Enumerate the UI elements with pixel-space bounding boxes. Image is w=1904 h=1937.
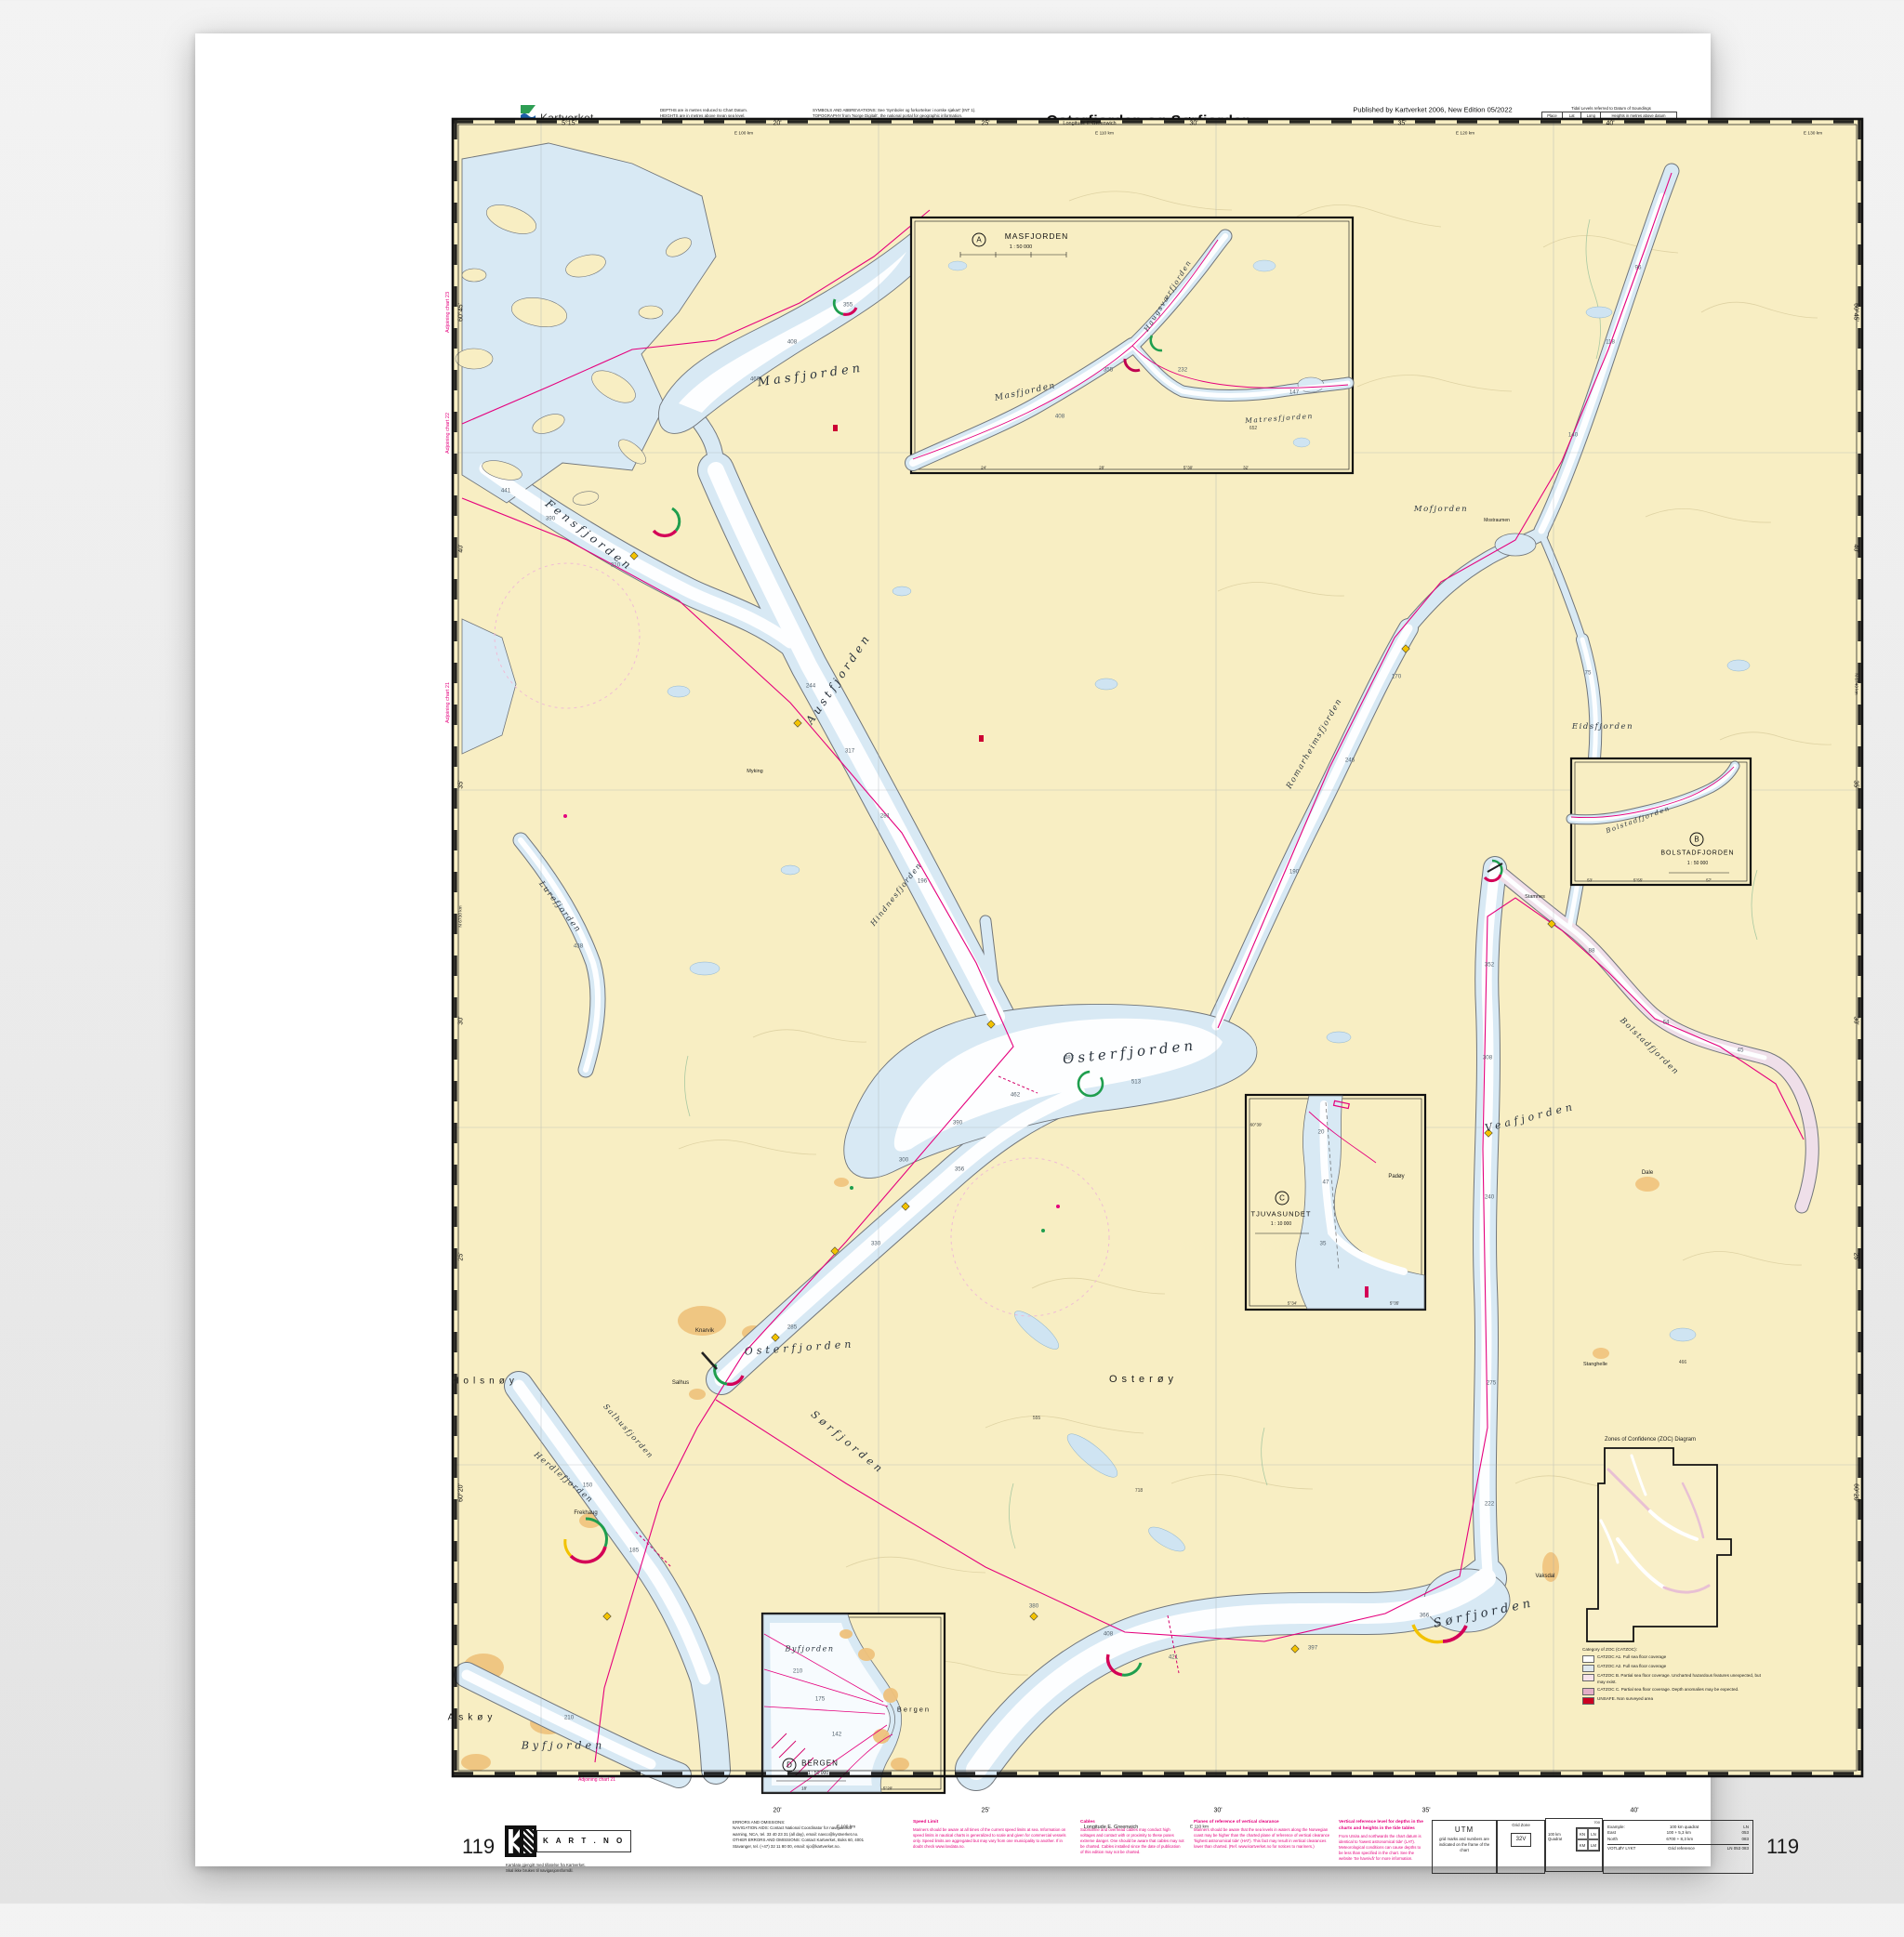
map-label: Longitude E Greenwich [1063,121,1116,126]
sounding: 408 [1104,1631,1113,1638]
map-label: MASFJORDEN [1005,231,1069,241]
zoc-legend-entry: CATZOC A2. Full sea floor coverage [1582,1664,1822,1672]
zoc-legend-title: Category of ZOC (CATZOC): [1582,1647,1822,1654]
map-label: BERGEN [801,1759,839,1768]
map-label: 40' [458,544,465,552]
sounding: 390 [546,516,555,522]
grid-zone-value: 32V [1511,1833,1531,1847]
map-label: 5°30' [1183,466,1193,470]
map-label: 5°20' [883,1786,892,1791]
map-label: 5°35' [1390,1301,1399,1306]
chart-sheet: Kartverket DEPTHS are in metres reduced … [195,33,1711,1866]
sounding: 170 [1392,674,1401,680]
sounding: 285 [787,1324,797,1331]
map-label: 20' [773,1808,781,1814]
map-label: Eidsfjorden [1572,722,1633,731]
quadrat-top: 700 [1548,1820,1600,1825]
map-label: Mofjorden [1414,505,1468,514]
map-label: 53' [1587,878,1593,883]
grid-example-box: Example:100 km quadratLN East100 + 5,3 k… [1603,1820,1753,1874]
quadrat-label: 100 km Quadrat [1548,1832,1572,1841]
map-label: Askøy [448,1713,497,1723]
map-label: 32' [1243,466,1249,470]
map-label: Byfjorden [786,1645,835,1654]
map-label: Matresfjorden [1245,412,1314,425]
map-label: 35' [1397,121,1406,127]
map-label: Frekhaug [574,1510,597,1516]
map-label: 5°55' [1633,878,1643,883]
sounding: 150 [583,1482,592,1489]
map-label: Bolstadfjorden [1618,1016,1681,1077]
map-label: 28' [1099,466,1104,470]
sounding: 185 [629,1548,639,1554]
sounding: 460 [750,376,760,383]
map-label: 30' [1853,1016,1859,1024]
map-label: N 6740 km [1854,673,1858,694]
map-label: E 100 km [734,132,753,137]
sounding: 210 [793,1668,802,1675]
kartno-logo: K A R T . N O [505,1825,631,1857]
map-label: B [1690,833,1704,847]
map-label: 1 : 50 000 [1010,244,1032,250]
map-label: TJUVASUNDET [1250,1210,1311,1219]
grid-zone-label: Grid Zone [1500,1823,1542,1827]
map-label: Adjoining chart 22 [445,413,451,454]
map-label: 35' [458,780,465,788]
sounding: 190 [1289,869,1299,876]
sounding: 275 [1487,1380,1496,1387]
map-label: 1 : 50 000 [1687,861,1708,866]
utm-box: UTM grid marks and numbers are indicated… [1432,1820,1497,1874]
sounding: 308 [1483,1055,1492,1061]
map-label: Herdlefjorden [532,1450,595,1505]
map-label: Osterfjorden [744,1337,854,1357]
sounding: 356 [955,1166,964,1173]
kartno-logo-text: K A R T . N O [536,1830,631,1852]
map-label: Adjoining chart 21 [445,682,451,723]
map-label: Hindnesfjorden [869,861,924,928]
map-label: Bergen [897,1706,931,1714]
map-label: A [972,233,986,247]
map-label: Austfjorden [803,630,874,726]
footer-note: Planes of reference of vertical clearanc… [1194,1820,1331,1850]
map-label: 466 [1679,1360,1686,1365]
map-label: D [783,1759,797,1772]
photo-background: Kartverket DEPTHS are in metres reduced … [0,0,1904,1904]
errors-block: ERRORS AND OMISSIONS:NAVIGATION AIDS: Co… [733,1820,892,1850]
map-label: 25' [981,1808,989,1814]
map-label: Masfjorden [994,381,1057,403]
sounding: 140 [1568,432,1578,439]
sounding: 380 [1029,1603,1038,1610]
map-label: 1 : 50 000 [808,1771,828,1776]
map-label: 60°20' [1853,1483,1859,1502]
sounding: 390 [953,1120,962,1127]
sounding: 147 [1289,389,1299,396]
chart-number-right: 119 [1766,1835,1799,1859]
sounding: 408 [1055,414,1064,420]
map-label: 718 [1135,1488,1143,1494]
sounding: 421 [1169,1654,1178,1661]
sounding: 64 [1663,1020,1670,1026]
map-label: 57' [1706,878,1712,883]
map-label: 18' [801,1786,807,1791]
map-label: Adjoining chart 23 [445,292,451,333]
sounding: 513 [1131,1079,1141,1086]
map-label: Osterøy [1109,1374,1178,1385]
map-label: 25' [981,121,989,127]
sounding: 196 [918,878,927,885]
map-label: 30' [458,1016,465,1024]
sounding: 397 [1308,1645,1317,1652]
map-label: 60°20' [458,1483,465,1502]
map-label: Dale [1642,1170,1653,1176]
map-label: 60°39' [1250,1123,1263,1127]
sounding: 47 [1323,1179,1329,1186]
map-label: 5°15' [562,121,576,127]
map-label: 40' [1853,544,1859,552]
map-label: 35' [1421,1808,1430,1814]
map-label: 652 [1249,426,1257,431]
map-label: E 130 km [1804,132,1822,137]
map-label: N 6730 km [459,905,464,927]
chart-number-left: 119 [462,1835,495,1859]
sounding: 441 [501,488,510,494]
map-label: 60°45' [1853,303,1859,322]
sounding: 355 [1104,367,1113,374]
sounding: 20 [1318,1129,1325,1136]
sounding: 330 [871,1241,880,1247]
sounding: 300 [899,1157,908,1164]
map-label: 24' [981,466,986,470]
sounding: 232 [1178,367,1187,374]
kartno-disclaimer: Kartdata gjengitt med tillatelse fra Kar… [506,1863,586,1874]
sounding: 35 [1320,1241,1327,1247]
sounding: 487 [1064,1055,1074,1061]
sounding: 45 [1738,1048,1744,1054]
map-label: Lurefjorden [536,879,583,934]
kartno-logo-icon [505,1825,536,1857]
map-label: Osterfjorden [1062,1036,1197,1067]
map-label: Bolstadfjorden [1605,805,1671,836]
sounding: 246 [1345,758,1355,764]
utm-title: UTM [1435,1825,1494,1835]
map-label: Veafjorden [1484,1100,1577,1135]
map-label: BOLSTADFJORDEN [1660,850,1734,857]
map-label: 20' [773,121,781,127]
sounding: 462 [1011,1092,1020,1099]
sounding: 75 [1585,670,1592,677]
footer-note: Speed LimitMariners should be aware at a… [913,1820,1069,1850]
zoc-legend: Category of ZOC (CATZOC): CATZOC A1. Ful… [1582,1647,1822,1706]
map-label: Sørfjorden [809,1408,888,1477]
sounding: 88 [1589,948,1595,955]
sounding: 222 [1485,1501,1494,1508]
map-label: 5°34' [1288,1301,1297,1306]
map-label: Masfjorden [757,362,865,390]
map-label: Haugsværfjorden [1143,258,1194,333]
map-label: C [1276,1192,1289,1206]
sounding: 244 [806,683,815,690]
quadrat-grid: KNLNKMLM [1576,1827,1600,1851]
map-label: Fensfjorden [543,497,636,574]
map-label: 35' [1853,780,1859,788]
sounding: 366 [1420,1613,1429,1619]
map-label: Salhusfjorden [602,1403,654,1460]
sounding: 281 [880,813,890,820]
zoc-legend-entry: CATZOC C. Partial sea floor coverage. De… [1582,1687,1822,1695]
map-label: Vaksdal [1536,1574,1555,1579]
footer-note: CablesSubmarine and overhead cables may … [1080,1820,1184,1855]
zoc-legend-entry: UNSAFE. Non surveyed area [1582,1696,1822,1705]
zoc-legend-entry: CATZOC B. Partial sea floor coverage. Un… [1582,1673,1822,1686]
quadrat-box: 700 KNLNKMLM 100 km Quadrat [1545,1818,1603,1872]
map-label: Zones of Confidence (ZOC) Diagram [1605,1437,1696,1443]
map-label: Adjoining chart 21 [578,1777,615,1783]
utm-text: grid marks and numbers are indicated on … [1435,1837,1494,1853]
map-label: Knarvik [695,1328,714,1334]
map-label: 40' [1606,121,1614,127]
map-label: 40' [1630,1808,1638,1814]
map-label: Stanghelle [1583,1362,1607,1367]
map-label: 30' [1189,121,1197,127]
sounding: 175 [815,1696,825,1703]
map-label: 60°45' [458,303,465,322]
map-label: Myking [747,769,762,774]
sounding: 310 [611,562,620,569]
map-label: Padøy [1388,1174,1404,1179]
sounding: 142 [832,1732,841,1738]
footer-note: Vertical reference level for depths in t… [1339,1820,1424,1862]
sounding: 210 [564,1715,574,1721]
map-label: Stamnes [1525,894,1545,900]
map-label: Romarheimsfjorden [1285,697,1344,791]
zoc-legend-entry: CATZOC A1. Full sea floor coverage [1582,1654,1822,1663]
map-label: Sørfjorden [1433,1596,1536,1631]
map-label: Salhus [672,1380,689,1386]
sounding: 352 [1485,962,1494,968]
sounding: 118 [1606,339,1615,346]
map-label: Holsnøy [452,1377,519,1387]
sounding: 408 [787,339,797,346]
sounding: 96 [1635,265,1642,271]
sounding: 240 [1485,1194,1494,1201]
map-label: 1 : 10 000 [1271,1221,1291,1227]
map-label: Mostraumen [1484,518,1510,523]
map-label: E 120 km [1456,132,1474,137]
sounding: 355 [843,302,853,309]
sounding: 438 [574,943,583,950]
map-label: 25' [458,1252,465,1260]
map-label: Byfjorden [522,1740,605,1752]
map-label: 30' [1213,1808,1222,1814]
map-label: 25' [1853,1252,1859,1260]
map-label: 555 [1033,1416,1040,1421]
map-label: E 110 km [1095,132,1114,137]
grid-zone-box: Grid Zone 32V [1497,1820,1545,1874]
sounding: 317 [845,748,854,755]
